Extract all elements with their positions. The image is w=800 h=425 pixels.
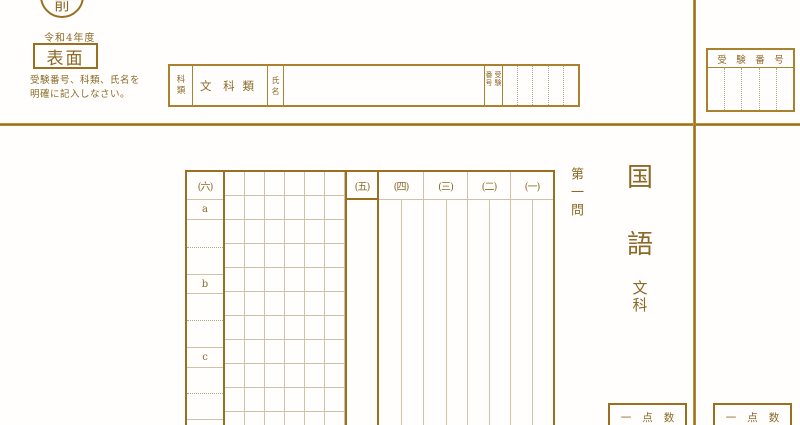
front-side-stamp-label: 前	[54, 0, 70, 16]
column-two: (二)	[468, 172, 511, 425]
column-five-header: (五)	[347, 172, 377, 200]
sub-label-b: b	[187, 275, 223, 294]
exam-number-digit-cell	[725, 68, 742, 110]
writing-guide-line	[532, 200, 533, 425]
name-label-char2: 名	[272, 86, 280, 97]
exam-number-box-cells	[708, 68, 793, 110]
column-one-header: (一)	[511, 172, 553, 200]
exam-number-digit-cell	[777, 68, 793, 110]
column-four: (四)	[379, 172, 424, 425]
score-box-left: 一点数	[608, 403, 687, 425]
exam-number-box-title-text: 受験番号	[717, 52, 793, 66]
subject-char2: 語	[627, 231, 653, 259]
exam-number-cells	[503, 66, 578, 105]
exam-number-label: 受験 番号	[485, 66, 503, 105]
name-field	[284, 66, 485, 105]
score-box-right: 一点数	[713, 403, 792, 425]
sub-label-a: a	[187, 200, 223, 220]
answer-cell	[187, 368, 223, 394]
exam-number-digit-cell	[533, 66, 548, 105]
track-char1: 文	[632, 280, 647, 297]
category-label-char2: 類	[177, 86, 186, 97]
category-value-prefix: 文 科	[200, 78, 239, 94]
column-six-header: (六)	[187, 172, 223, 200]
column-one: (一)	[511, 172, 553, 425]
vertical-fold-line	[693, 0, 696, 425]
sub-label-c: c	[187, 348, 223, 368]
answer-cell	[187, 321, 223, 348]
exam-number-digit-cell	[518, 66, 533, 105]
category-label: 科 類	[170, 66, 193, 105]
face-label-box: 表面	[33, 43, 98, 69]
category-label-char1: 科	[177, 75, 186, 86]
horizontal-fold-line	[0, 123, 800, 126]
exam-number-label-part1: 受験	[493, 71, 502, 105]
exam-number-digit-cell	[760, 68, 777, 110]
answer-cell	[187, 220, 223, 248]
front-side-stamp: 前	[40, 0, 84, 18]
exam-number-box-title: 受験番号	[708, 50, 793, 68]
answer-grid: (六) a b c (五) (四) (三) (二) (一)	[185, 170, 555, 425]
writing-guide-line	[401, 200, 402, 425]
exam-number-digit-cell	[742, 68, 759, 110]
column-three: (三)	[424, 172, 468, 425]
character-grid	[223, 172, 347, 425]
exam-number-digit-cell	[708, 68, 725, 110]
category-value-cell: 文 科 類	[193, 66, 268, 105]
category-value-suffix: 類	[243, 78, 255, 94]
score-box-right-label: 一点数	[726, 410, 791, 425]
fill-in-instructions: 受験番号、科類、氏名を 明確に記入しなさい。	[30, 74, 140, 102]
column-four-header: (四)	[379, 172, 423, 200]
answer-cell	[187, 248, 223, 275]
candidate-info-form: 科 類 文 科 類 氏 名 受験 番号	[168, 64, 580, 107]
exam-number-box: 受験番号	[706, 48, 795, 112]
exam-answer-sheet: 前 令和4年度 表面 受験番号、科類、氏名を 明確に記入しなさい。 科 類 文 …	[0, 0, 800, 425]
answer-cell	[187, 394, 223, 420]
year-label: 令和4年度	[44, 29, 95, 44]
column-two-header: (二)	[468, 172, 510, 200]
face-label: 表面	[47, 44, 85, 69]
question-title: 第一問	[566, 167, 585, 221]
answer-cell	[187, 294, 223, 321]
instructions-line1: 受験番号、科類、氏名を	[30, 74, 140, 88]
instructions-line2: 明確に記入しなさい。	[30, 88, 140, 102]
score-box-left-label: 一点数	[621, 410, 686, 425]
exam-number-digit-cell	[503, 66, 518, 105]
exam-number-label-part2: 番号	[484, 71, 493, 105]
column-three-header: (三)	[424, 172, 467, 200]
subject-char1: 国	[627, 164, 653, 192]
name-label-char1: 氏	[272, 75, 280, 86]
column-six: (六) a b c	[187, 172, 223, 425]
writing-guide-line	[489, 200, 490, 425]
track-char2: 科	[632, 297, 647, 314]
exam-number-digit-cell	[549, 66, 564, 105]
writing-guide-line	[446, 200, 447, 425]
name-label: 氏 名	[268, 66, 284, 105]
exam-number-digit-cell	[564, 66, 578, 105]
column-five: (五)	[347, 172, 379, 425]
subject-title: 国 語 文 科	[624, 164, 656, 314]
